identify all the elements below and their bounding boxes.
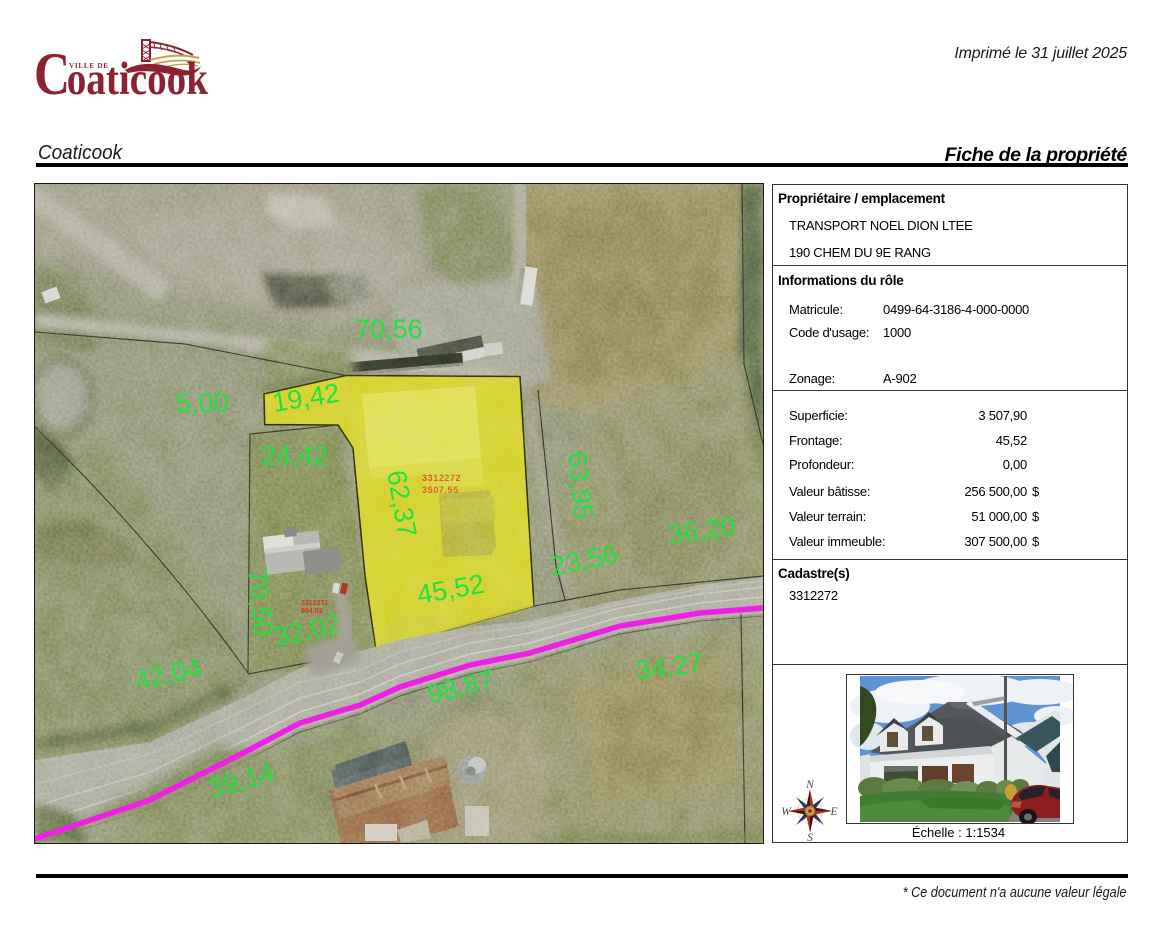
svg-text:24,42: 24,42 bbox=[261, 441, 329, 471]
svg-text:E: E bbox=[829, 806, 837, 818]
svg-text:N: N bbox=[805, 779, 815, 791]
svg-text:5,00: 5,00 bbox=[176, 388, 229, 418]
svg-text:S: S bbox=[807, 832, 813, 844]
svg-text:70,56: 70,56 bbox=[355, 314, 423, 344]
svg-text:3312271: 3312271 bbox=[301, 600, 328, 607]
svg-text:994,03: 994,03 bbox=[301, 608, 323, 615]
svg-text:W: W bbox=[781, 806, 792, 818]
